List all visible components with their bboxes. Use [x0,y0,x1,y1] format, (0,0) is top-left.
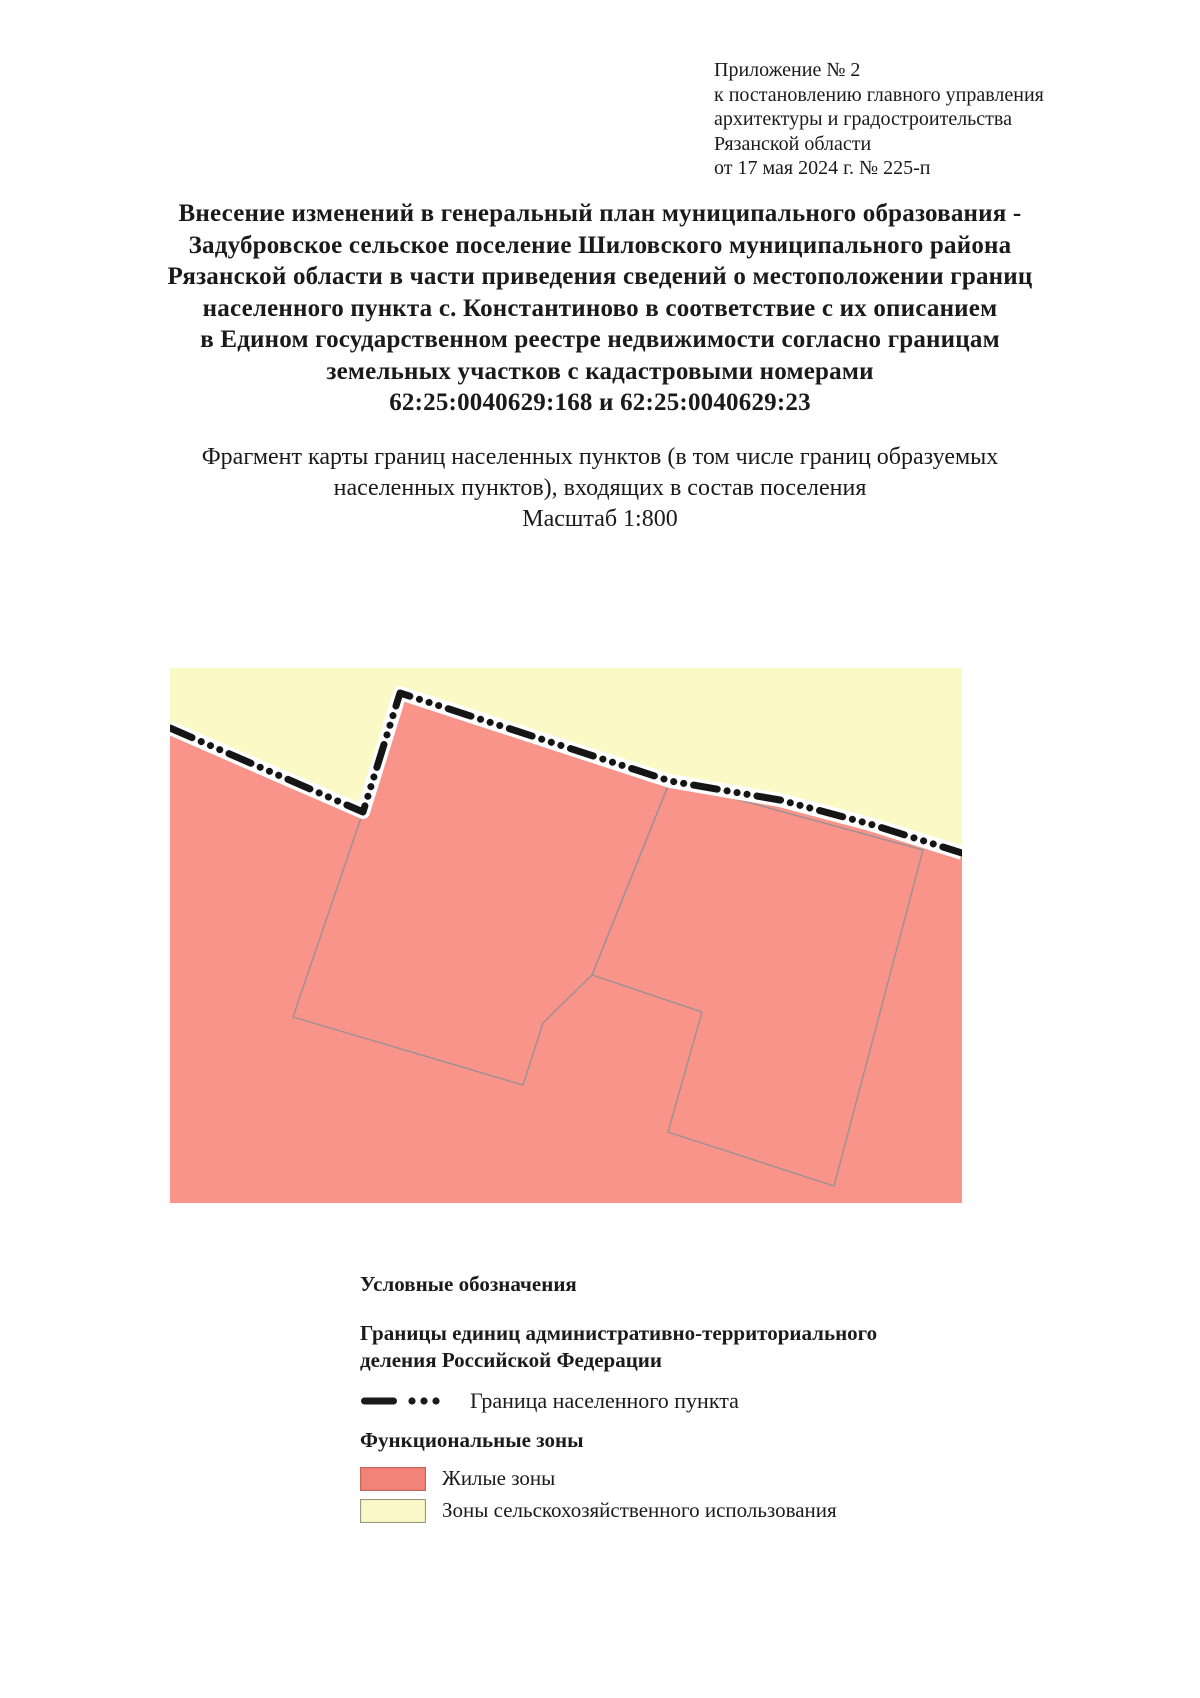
residential-zone-swatch [360,1467,426,1491]
caption-line: Фрагмент карты границ населенных пунктов… [0,442,1200,473]
legend-zone-label: Зоны сельскохозяйственного использования [442,1498,837,1523]
title-line: земельных участков с кадастровыми номера… [0,356,1200,388]
title-line: 62:25:0040629:168 и 62:25:0040629:23 [0,387,1200,419]
legend-zone-item-residential: Жилые зоны [360,1466,1060,1491]
map-canvas [170,668,962,1203]
legend-zone-label: Жилые зоны [442,1466,555,1491]
appendix-line: архитектуры и градостроительства [714,107,1044,132]
title-line: населенного пункта с. Константиново в со… [0,293,1200,325]
title-line: Внесение изменений в генеральный план му… [0,198,1200,230]
legend-zone-item-agricultural: Зоны сельскохозяйственного использования [360,1498,1060,1523]
title-line: в Едином государственном реестре недвижи… [0,324,1200,356]
legend-boundary-label: Граница населенного пункта [470,1388,739,1414]
scale-line: Масштаб 1:800 [0,504,1200,535]
legend-boundary-item: Граница населенного пункта [360,1388,1060,1414]
settlement-boundary-symbol-icon [360,1394,452,1408]
boundary-symbol-dot [420,1397,427,1404]
appendix-line: Рязанской области [714,132,1044,157]
title-line: Задубровское сельское поселение Шиловско… [0,230,1200,262]
legend-zones-heading: Функциональные зоны [360,1428,1060,1453]
appendix-line: к постановлению главного управления [714,83,1044,108]
document-title: Внесение изменений в генеральный план му… [0,198,1200,419]
map-fragment [170,668,962,1203]
legend-admin-group-heading: Границы единиц административно-территори… [360,1320,900,1374]
agricultural-zone-swatch [360,1499,426,1523]
boundary-symbol-dash [361,1398,397,1405]
legend-title: Условные обозначения [360,1272,1060,1297]
title-line: Рязанской области в части приведения све… [0,261,1200,293]
map-caption: Фрагмент карты границ населенных пунктов… [0,442,1200,535]
appendix-line: Приложение № 2 [714,58,1044,83]
boundary-symbol-dot [408,1397,415,1404]
appendix-line: от 17 мая 2024 г. № 225-п [714,156,1044,181]
residential-swatch-rect [361,1467,426,1490]
agricultural-swatch-rect [361,1499,426,1522]
caption-line: населенных пунктов), входящих в состав п… [0,473,1200,504]
boundary-symbol-dot [432,1397,439,1404]
appendix-reference-block: Приложение № 2 к постановлению главного … [714,58,1044,181]
